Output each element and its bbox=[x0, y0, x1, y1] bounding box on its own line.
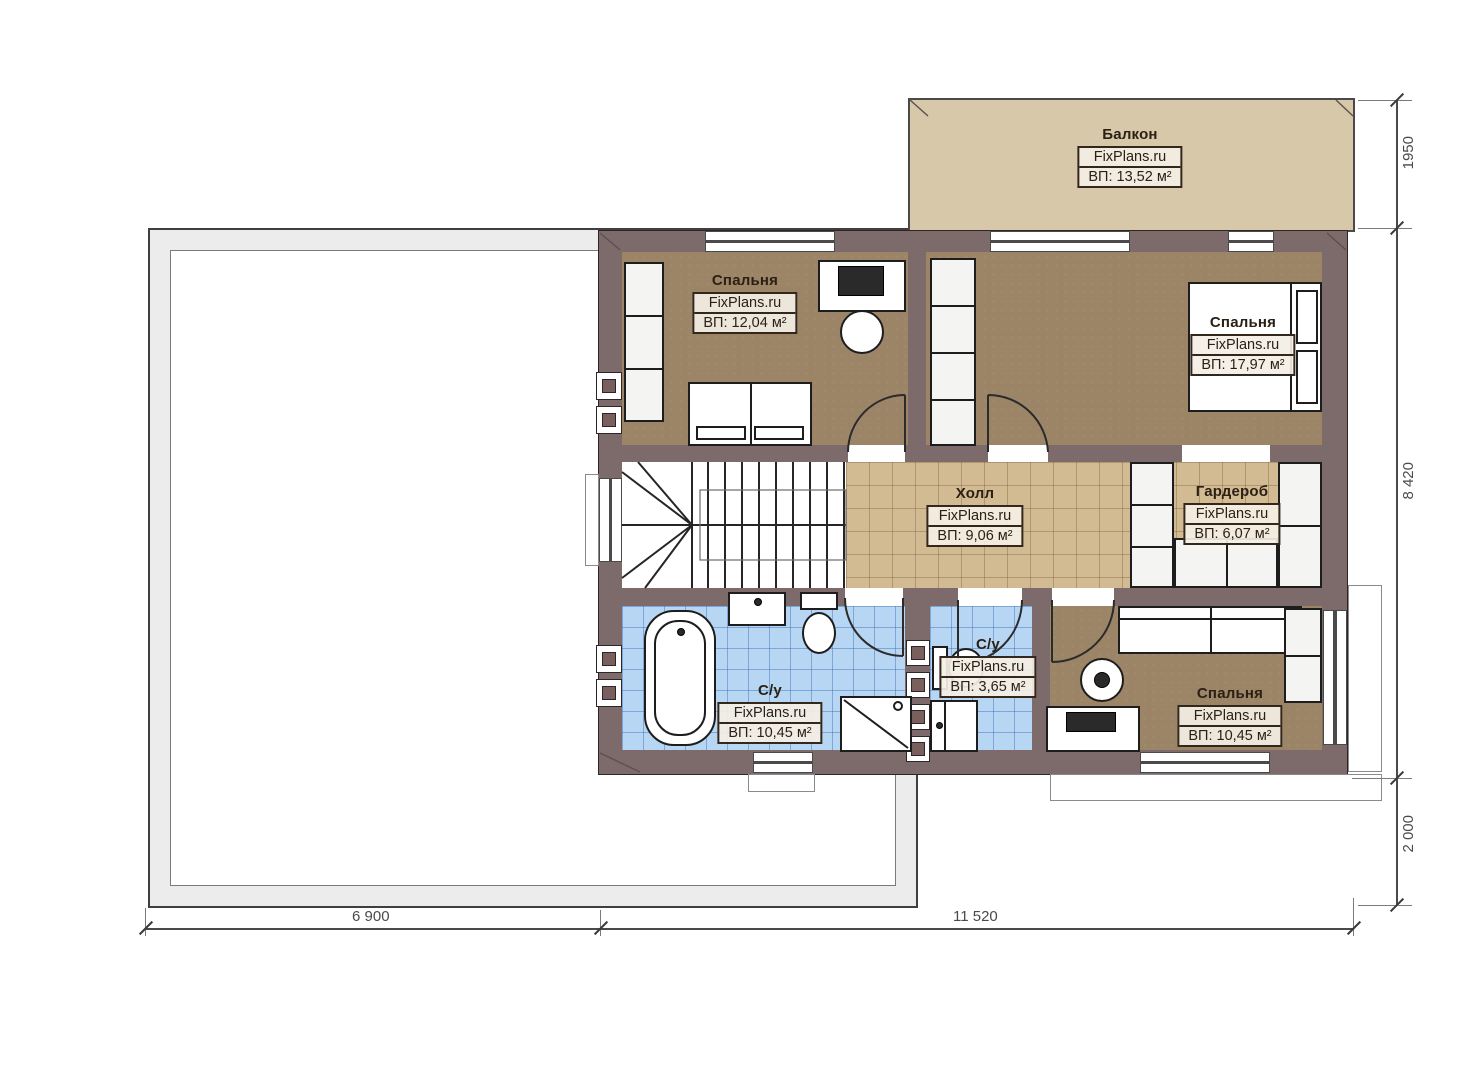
label-box: FixPlans.ru ВП: 10,45 м² bbox=[717, 702, 822, 744]
fixplans-watermark: FixPlans.ru bbox=[1179, 707, 1280, 725]
room-area: ВП: 3,65 м² bbox=[941, 676, 1034, 696]
fixplans-watermark: FixPlans.ru bbox=[1079, 148, 1180, 166]
dimension-extension bbox=[1358, 100, 1412, 101]
label-bedroom-bottom-right: Спальня FixPlans.ru ВП: 10,45 м² bbox=[1177, 685, 1282, 747]
label-bathroom-small: С/у FixPlans.ru ВП: 3,65 м² bbox=[939, 636, 1036, 698]
room-area: ВП: 17,97 м² bbox=[1192, 354, 1293, 374]
fixplans-watermark: FixPlans.ru bbox=[1192, 336, 1293, 354]
dimension-extension bbox=[1352, 778, 1412, 779]
fixplans-watermark: FixPlans.ru bbox=[928, 507, 1021, 525]
label-box: FixPlans.ru ВП: 6,07 м² bbox=[1183, 503, 1280, 545]
stairs-treads bbox=[622, 462, 846, 588]
room-name: Гардероб bbox=[1183, 483, 1280, 500]
room-name: Спальня bbox=[1177, 685, 1282, 702]
room-name: Балкон bbox=[1077, 126, 1182, 143]
dimension-value: 11 520 bbox=[953, 908, 998, 925]
dimension-extension bbox=[600, 910, 601, 936]
dimension-value: 1950 bbox=[1400, 136, 1417, 169]
dimension-extension bbox=[1353, 898, 1354, 936]
label-bathroom-main: С/у FixPlans.ru ВП: 10,45 м² bbox=[717, 682, 822, 744]
dimension-extension bbox=[1358, 228, 1412, 229]
room-name: С/у bbox=[717, 682, 822, 699]
dimension-value: 8 420 bbox=[1400, 462, 1417, 500]
label-box: FixPlans.ru ВП: 12,04 м² bbox=[692, 292, 797, 334]
label-box: FixPlans.ru ВП: 10,45 м² bbox=[1177, 705, 1282, 747]
floor-plan: Балкон FixPlans.ru ВП: 13,52 м² Спальня … bbox=[0, 0, 1473, 1080]
label-hall: Холл FixPlans.ru ВП: 9,06 м² bbox=[926, 485, 1023, 547]
fixplans-watermark: FixPlans.ru bbox=[719, 704, 820, 722]
room-area: ВП: 6,07 м² bbox=[1185, 523, 1278, 543]
fixplans-watermark: FixPlans.ru bbox=[694, 294, 795, 312]
room-area: ВП: 10,45 м² bbox=[1179, 725, 1280, 745]
dimension-value: 2 000 bbox=[1400, 815, 1417, 853]
room-area: ВП: 9,06 м² bbox=[928, 525, 1021, 545]
label-balcony: Балкон FixPlans.ru ВП: 13,52 м² bbox=[1077, 126, 1182, 188]
label-bedroom-top-left: Спальня FixPlans.ru ВП: 12,04 м² bbox=[692, 272, 797, 334]
room-name: Спальня bbox=[692, 272, 797, 289]
room-area: ВП: 13,52 м² bbox=[1079, 166, 1180, 186]
dimension-line-bottom bbox=[145, 928, 1353, 930]
dimension-value: 6 900 bbox=[352, 908, 390, 925]
label-box: FixPlans.ru ВП: 13,52 м² bbox=[1077, 146, 1182, 188]
dimension-extension bbox=[145, 908, 146, 936]
shower-diagonal bbox=[844, 700, 908, 748]
room-area: ВП: 10,45 м² bbox=[719, 722, 820, 742]
room-area: ВП: 12,04 м² bbox=[694, 312, 795, 332]
fixplans-watermark: FixPlans.ru bbox=[1185, 505, 1278, 523]
dimension-line-right bbox=[1396, 100, 1398, 905]
label-box: FixPlans.ru ВП: 17,97 м² bbox=[1190, 334, 1295, 376]
label-bedroom-top-right: Спальня FixPlans.ru ВП: 17,97 м² bbox=[1190, 314, 1295, 376]
room-name: С/у bbox=[939, 636, 1036, 653]
label-box: FixPlans.ru ВП: 3,65 м² bbox=[939, 656, 1036, 698]
label-box: FixPlans.ru ВП: 9,06 м² bbox=[926, 505, 1023, 547]
dimension-extension bbox=[1358, 905, 1412, 906]
fixplans-watermark: FixPlans.ru bbox=[941, 658, 1034, 676]
room-name: Холл bbox=[926, 485, 1023, 502]
room-name: Спальня bbox=[1190, 314, 1295, 331]
label-wardrobe: Гардероб FixPlans.ru ВП: 6,07 м² bbox=[1183, 483, 1280, 545]
